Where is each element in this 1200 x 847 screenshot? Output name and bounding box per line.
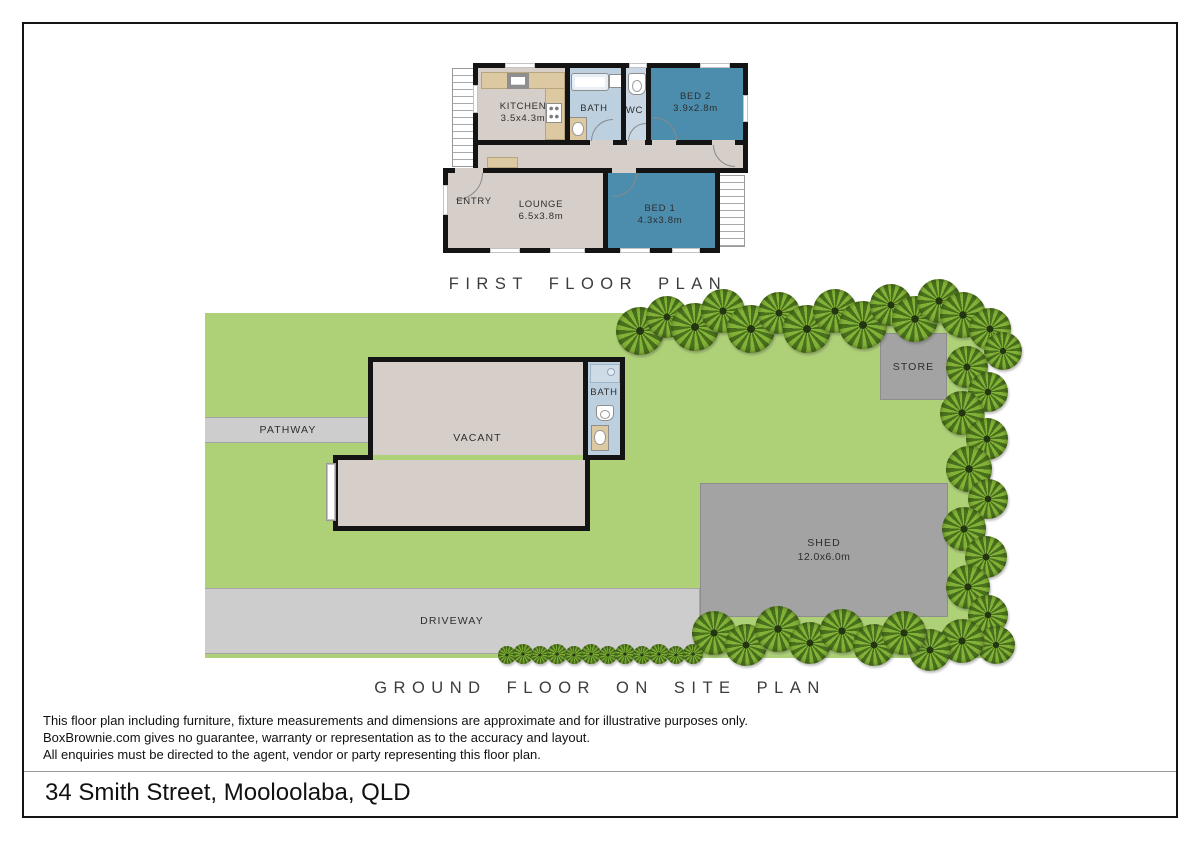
sink-icon [507,73,529,89]
label-bed2: BED 2 3.9x2.8m [648,91,743,115]
window [672,248,700,253]
driveway: DRIVEWAY [205,588,700,654]
wall [368,357,373,460]
disclaimer: This floor plan including furniture, fix… [43,712,748,763]
kitchen-name: KITCHEN [479,101,567,113]
window [743,95,748,122]
window [700,63,730,68]
label-shed-dims: 12.0x6.0m [798,550,851,564]
property-address: 34 Smith Street, Mooloolaba, QLD [45,779,411,807]
disclaimer-line: This floor plan including furniture, fix… [43,712,748,729]
lounge-dims: 6.5x3.8m [495,211,587,223]
bed1-dims: 4.3x3.8m [605,215,715,227]
toilet-icon [596,405,614,421]
bed1-name: BED 1 [605,203,715,215]
window [505,63,535,68]
label-lounge: LOUNGE 6.5x3.8m [495,199,587,223]
window [620,248,650,253]
basin-icon [591,425,609,451]
label-ground-bath: BATH [588,387,620,399]
bathtub-icon [571,73,609,91]
hall-bench [487,157,518,168]
label-bath: BATH [567,103,621,115]
first-floor-plan: KITCHEN 3.5x4.3m BATH WC BED 2 3.9x2.8m … [443,63,755,263]
stairs [717,175,745,247]
label-kitchen: KITCHEN 3.5x4.3m [479,101,567,125]
window [550,248,585,253]
label-shed: SHED [807,536,841,550]
window [629,63,647,68]
label-wc: WC [623,105,646,117]
wall [473,63,478,173]
pathway: PATHWAY [205,417,371,443]
window [490,248,520,253]
disclaimer-line: All enquiries must be directed to the ag… [43,746,748,763]
lounge-name: LOUNGE [495,199,587,211]
wall [620,357,625,460]
shed: SHED 12.0x6.0m [700,483,948,617]
site-plan-title: GROUND FLOOR ON SITE PLAN [200,679,1000,698]
kitchen-dims: 3.5x4.3m [479,113,567,125]
disclaimer-line: BoxBrownie.com gives no guarantee, warra… [43,729,748,746]
shower-icon [590,364,620,383]
label-entry: ENTRY [448,196,500,208]
label-pathway: PATHWAY [260,423,317,437]
wall [585,455,590,531]
bed2-name: BED 2 [648,91,743,103]
garage-door [326,463,336,521]
bed2-dims: 3.9x2.8m [648,103,743,115]
vacant-building-floor [338,460,585,526]
wall [583,455,625,460]
basin-icon [569,117,587,141]
wall [621,63,626,145]
label-bed1: BED 1 4.3x3.8m [605,203,715,227]
store: STORE [880,333,947,400]
wall [333,455,373,460]
wall [333,526,590,531]
first-floor-plan-title: FIRST FLOOR PLAN [188,275,988,294]
address-bar-divider [24,771,1176,772]
wall [443,168,748,173]
window [473,85,478,113]
label-driveway: DRIVEWAY [420,614,484,628]
label-store: STORE [893,360,934,374]
toilet-icon [628,73,646,95]
site-plan: PATHWAY DRIVEWAY SHED 12.0x6.0m STORE VA… [205,313,985,658]
wall [715,168,720,253]
label-vacant: VACANT [375,431,580,445]
wall [583,357,588,460]
